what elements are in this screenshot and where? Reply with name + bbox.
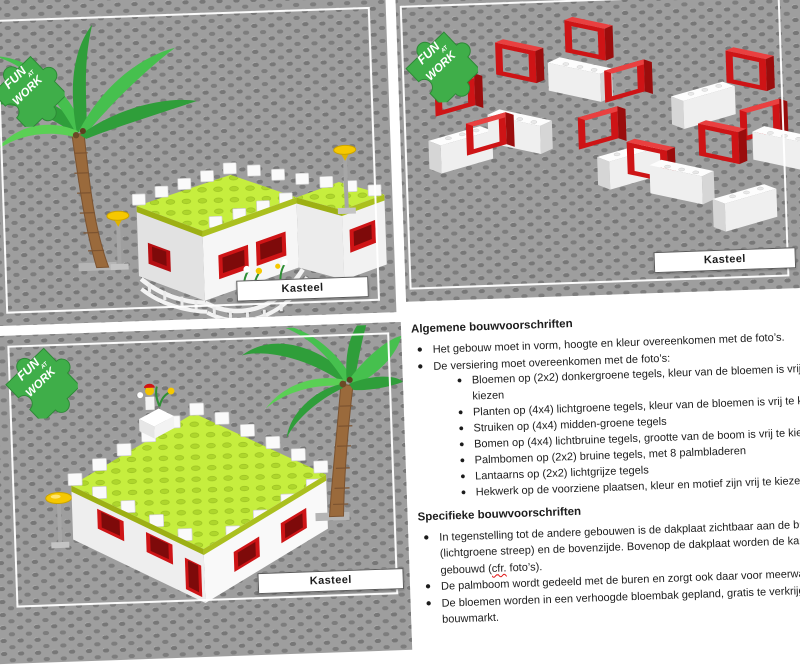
bullet-marker: ● <box>410 358 434 375</box>
bullet-marker: ● <box>451 374 473 407</box>
misspelled-word: cfr. <box>492 562 507 575</box>
bullet-marker: ● <box>453 453 475 470</box>
street-lamp <box>107 211 131 270</box>
bullet-marker: ● <box>455 485 477 502</box>
fun-at-work-logo: FUN AT WORK <box>0 331 79 420</box>
photo-castle-rear-view: FUN AT WORK Kasteel <box>0 322 412 666</box>
document-page: FUN AT WORK Kasteel <box>0 0 800 665</box>
bullet-marker: ● <box>453 437 475 454</box>
fun-at-work-logo: FUN AT WORK <box>0 40 66 129</box>
bullet-marker: ● <box>418 579 442 596</box>
bullet-marker: ● <box>416 529 441 579</box>
street-lamp <box>46 492 74 548</box>
fun-at-work-logo: FUN AT WORK <box>394 15 479 104</box>
caption-text: Kasteel <box>281 282 323 295</box>
bullet-marker: ● <box>454 469 476 486</box>
photo-castle-front-view: FUN AT WORK Kasteel <box>0 0 396 328</box>
bullet-marker: ● <box>409 342 433 359</box>
caption-text: Kasteel <box>310 574 352 587</box>
caption-text: Kasteel <box>704 253 746 266</box>
bullet-marker: ● <box>452 421 474 438</box>
bullet-marker: ● <box>418 595 442 629</box>
bullet-marker: ● <box>452 405 474 422</box>
instructions-text: Algemene bouwvoorschriften ● Het gebouw … <box>406 296 800 629</box>
instructions-panel: Algemene bouwvoorschriften ● Het gebouw … <box>406 296 800 649</box>
photo-walls-stage-view: FUN AT WORK BRICK CITY Kasteel <box>394 0 800 302</box>
